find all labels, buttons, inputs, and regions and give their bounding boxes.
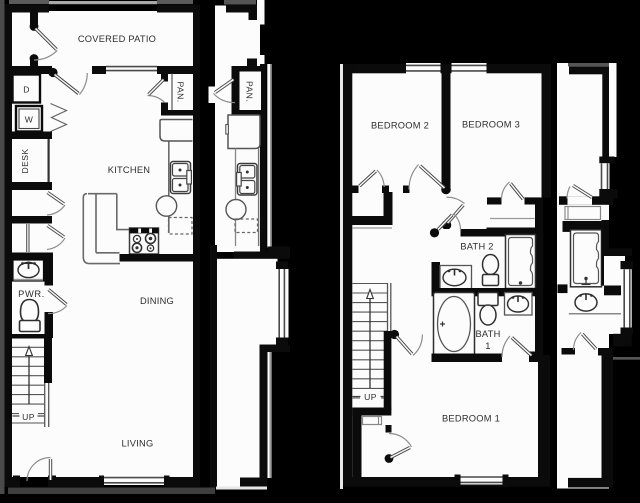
svg-text:UP: UP xyxy=(22,412,35,422)
svg-text:PWR.: PWR. xyxy=(18,289,45,299)
svg-text:PAN.: PAN. xyxy=(176,81,186,102)
svg-text:W: W xyxy=(25,115,34,125)
svg-text:BEDROOM 2: BEDROOM 2 xyxy=(371,121,429,131)
svg-text:LIVING: LIVING xyxy=(122,439,154,449)
svg-text:BATH 2: BATH 2 xyxy=(460,242,493,252)
svg-text:BEDROOM 1: BEDROOM 1 xyxy=(442,414,500,424)
svg-text:BEDROOM 3: BEDROOM 3 xyxy=(462,120,520,130)
svg-text:DINING: DINING xyxy=(140,296,174,306)
svg-text:DESK: DESK xyxy=(20,148,30,173)
svg-text:KITCHEN: KITCHEN xyxy=(108,165,151,175)
svg-text:1: 1 xyxy=(485,341,490,351)
svg-text:COVERED PATIO: COVERED PATIO xyxy=(78,34,156,44)
svg-text:D: D xyxy=(23,85,30,95)
svg-text:BATH: BATH xyxy=(475,329,500,339)
svg-text:UP: UP xyxy=(364,392,377,402)
svg-text:PAN.: PAN. xyxy=(245,81,255,102)
